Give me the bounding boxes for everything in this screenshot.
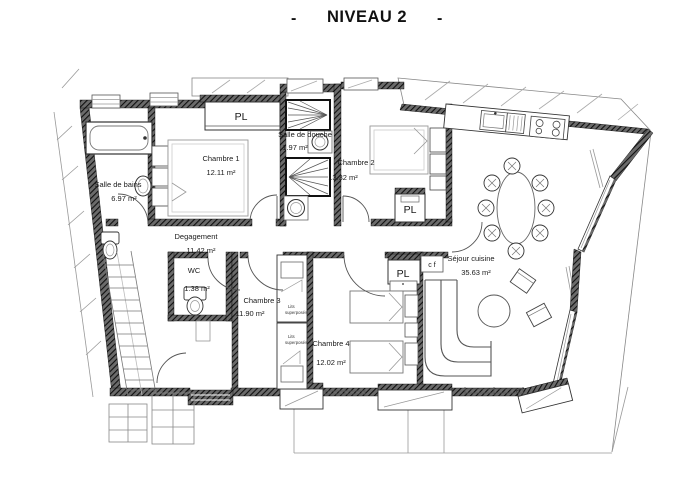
dining-set (478, 158, 554, 259)
bed-chambre4-a (350, 291, 403, 323)
label-bunk-upper-2: superposés (285, 310, 307, 315)
shelf (405, 323, 418, 337)
label-wc-area: 1.38 m² (184, 284, 210, 293)
door-sejour (452, 222, 482, 252)
label-sejour-area: 35.63 m² (461, 268, 491, 277)
bunk-bed-lower (277, 323, 307, 389)
sofa (425, 280, 491, 376)
door-chambre4 (344, 255, 385, 296)
label-chambre3-area: 11.90 m² (235, 309, 265, 318)
skylight-window (287, 79, 323, 93)
shower-stall (286, 158, 330, 196)
headboard-shelf (152, 188, 168, 206)
label-bunk-lower-2: superposés (285, 340, 307, 345)
headboard-shelf (430, 154, 446, 174)
window-bottom-dark (188, 390, 233, 405)
armchair (510, 269, 536, 294)
label-cf: c f (428, 262, 435, 269)
headboard-shelf (152, 168, 168, 186)
chambre2-furniture (370, 126, 446, 190)
chambre4-furniture (350, 291, 418, 373)
label-chambre1-area: 12.11 m² (206, 168, 236, 177)
bed-chambre4-b (350, 341, 403, 373)
skylight-grid (109, 393, 194, 444)
shower-stall (286, 100, 330, 130)
bed-chambre1 (168, 140, 248, 216)
bed-chambre2 (370, 126, 428, 174)
skylight-window (344, 78, 378, 90)
kitchen-sink (480, 110, 526, 133)
label-chambre3: Chambre 3 (243, 296, 280, 305)
label-chambre4: Chambre 4 (312, 339, 349, 348)
bunk-beds (277, 255, 307, 389)
duct-box (196, 321, 210, 341)
headboard-shelf (430, 128, 446, 152)
headboard-shelf (430, 176, 446, 190)
label-chambre4-area: 12.02 m² (316, 358, 346, 367)
headboard-shelf (152, 146, 168, 166)
label-chambre2: Chambre 2 (337, 158, 374, 167)
shelf (405, 295, 418, 317)
washbasin (284, 196, 308, 220)
bay-window (378, 384, 452, 410)
label-salle-de-bains-area: 6.97 m² (111, 194, 137, 203)
window-right-lower (552, 310, 577, 390)
door-chambre1 (250, 195, 277, 222)
stove (529, 116, 565, 139)
label-chambre1: Chambre 1 (202, 154, 239, 163)
label-pl-top: PL (235, 111, 248, 123)
door-palier (157, 353, 186, 383)
label-bunk-upper-1: Lits (288, 304, 295, 309)
bathtub (86, 122, 152, 154)
label-salle-de-bains: Salle de bains (94, 180, 141, 189)
armchair (526, 303, 551, 327)
coffee-table (478, 295, 510, 327)
label-pl-mid: PL (404, 204, 417, 216)
label-salle-de-douche-area: 1.97 m² (282, 143, 308, 152)
label-degagement: Degagement (175, 232, 219, 241)
skylight-window (92, 95, 120, 108)
chambre1-furniture (152, 140, 248, 216)
window-right-upper (578, 176, 616, 252)
shelf (405, 343, 418, 365)
label-pl-low: PL (397, 268, 410, 280)
label-chambre2-area: 13.32 m² (328, 173, 358, 182)
label-salle-de-douche: Salle de douche (278, 130, 332, 139)
label-degagement-area: 11.42 m² (186, 246, 216, 255)
door-chambre2 (343, 196, 369, 222)
label-wc: WC (188, 266, 201, 275)
shower-block (284, 100, 332, 220)
bay-window-corner (517, 378, 573, 413)
label-bunk-lower-1: Lits (288, 334, 295, 339)
floor-plan-svg: Salle de bains 6.97 m² Chambre 1 12.11 m… (0, 0, 700, 500)
skylight-window (150, 93, 178, 106)
floor-plan-page: - NIVEAU 2 - (0, 0, 700, 500)
dining-table (497, 172, 535, 244)
label-sejour: Séjour cuisine (447, 254, 494, 263)
